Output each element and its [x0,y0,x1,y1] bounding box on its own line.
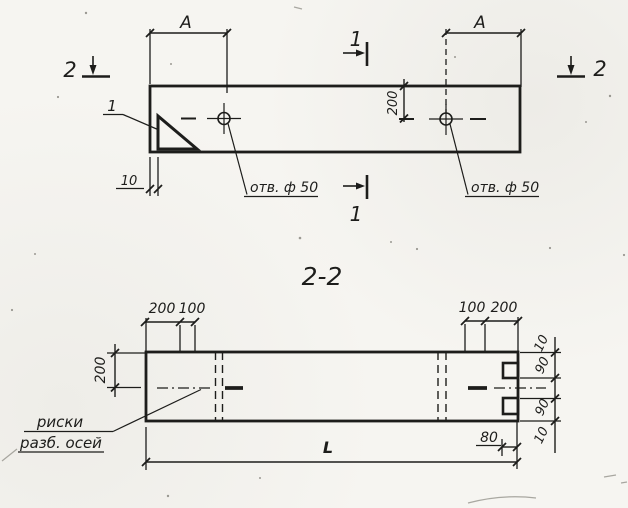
plan-beam-outline [150,86,520,152]
dim-a-left: A [146,13,231,93]
dim-total-length: L [142,427,521,470]
drawing-sheet: 1 10 A A [0,0,628,508]
section-mark-1-bottom-label: 1 [350,202,363,226]
dim-100-right: 100 [459,300,486,316]
hole-label-left: отв. ф 50 [228,124,318,197]
dim-right-10-bottom: 10 [532,425,553,446]
section-mark-2-right-label: 2 [593,57,606,81]
dim-left-vertical-value: 200 [93,357,109,384]
dim-a-right: A [442,13,525,113]
dim-100-left: 100 [179,301,206,317]
dim-notch-depth-value: 80 [480,430,498,446]
section-beam-outline [146,352,518,421]
arrow-right-icon [356,183,365,190]
dim-200-left: 200 [149,301,176,317]
arrow-down-icon [568,65,575,75]
dim-edge-gap: 10 [116,157,162,196]
axis-note-line1: риски [36,413,84,431]
dim-offset-value: 200 [386,91,401,116]
dims-top-right: 100 200 [459,300,522,352]
scan-artifacts [2,7,627,503]
section-mark-2-right: 2 [557,56,607,81]
dim-right-10-top: 10 [532,333,553,354]
detail-callout-label: 1 [107,97,117,115]
axis-dashed-lines-left [216,352,223,421]
hole-right [399,104,486,135]
hole-left [181,103,241,134]
axis-dashed-lines-right [438,352,446,421]
section-mark-1-bottom: 1 [343,175,367,226]
hole-label-right: отв. ф 50 [450,124,539,197]
section-title: 2-2 [302,262,343,291]
plan-view: 1 10 A A [63,13,606,226]
end-notch-upper [503,363,518,378]
dim-a-left-value: A [179,13,192,33]
dim-right-90-upper: 90 [533,355,554,376]
hole-label-right-text: отв. ф 50 [471,180,539,196]
section-view: 2-2 риски разб. осей [18,262,561,470]
dim-left-vertical: 200 [93,344,146,397]
section-mark-1-top-label: 1 [350,27,363,51]
end-notch-lower [503,398,518,414]
technical-drawing: 1 10 A A [0,0,628,508]
section-mark-2-left-label: 2 [63,58,76,82]
section-mark-2-left: 2 [63,56,110,82]
axis-note-line2: разб. осей [19,434,102,452]
dims-right-vertical: 10 90 90 10 [520,333,561,453]
dims-top-left: 200 100 [141,301,205,352]
dim-edge-gap-value: 10 [121,174,138,189]
dim-a-right-value: A [473,13,486,33]
dim-200-right: 200 [491,300,518,316]
hole-label-left-text: отв. ф 50 [250,180,318,196]
dim-right-90-lower: 90 [533,397,554,418]
section-mark-1-top: 1 [343,27,367,66]
dim-total-length-value: L [323,438,333,457]
arrow-down-icon [90,65,97,75]
corner-triangle-detail [158,116,197,149]
